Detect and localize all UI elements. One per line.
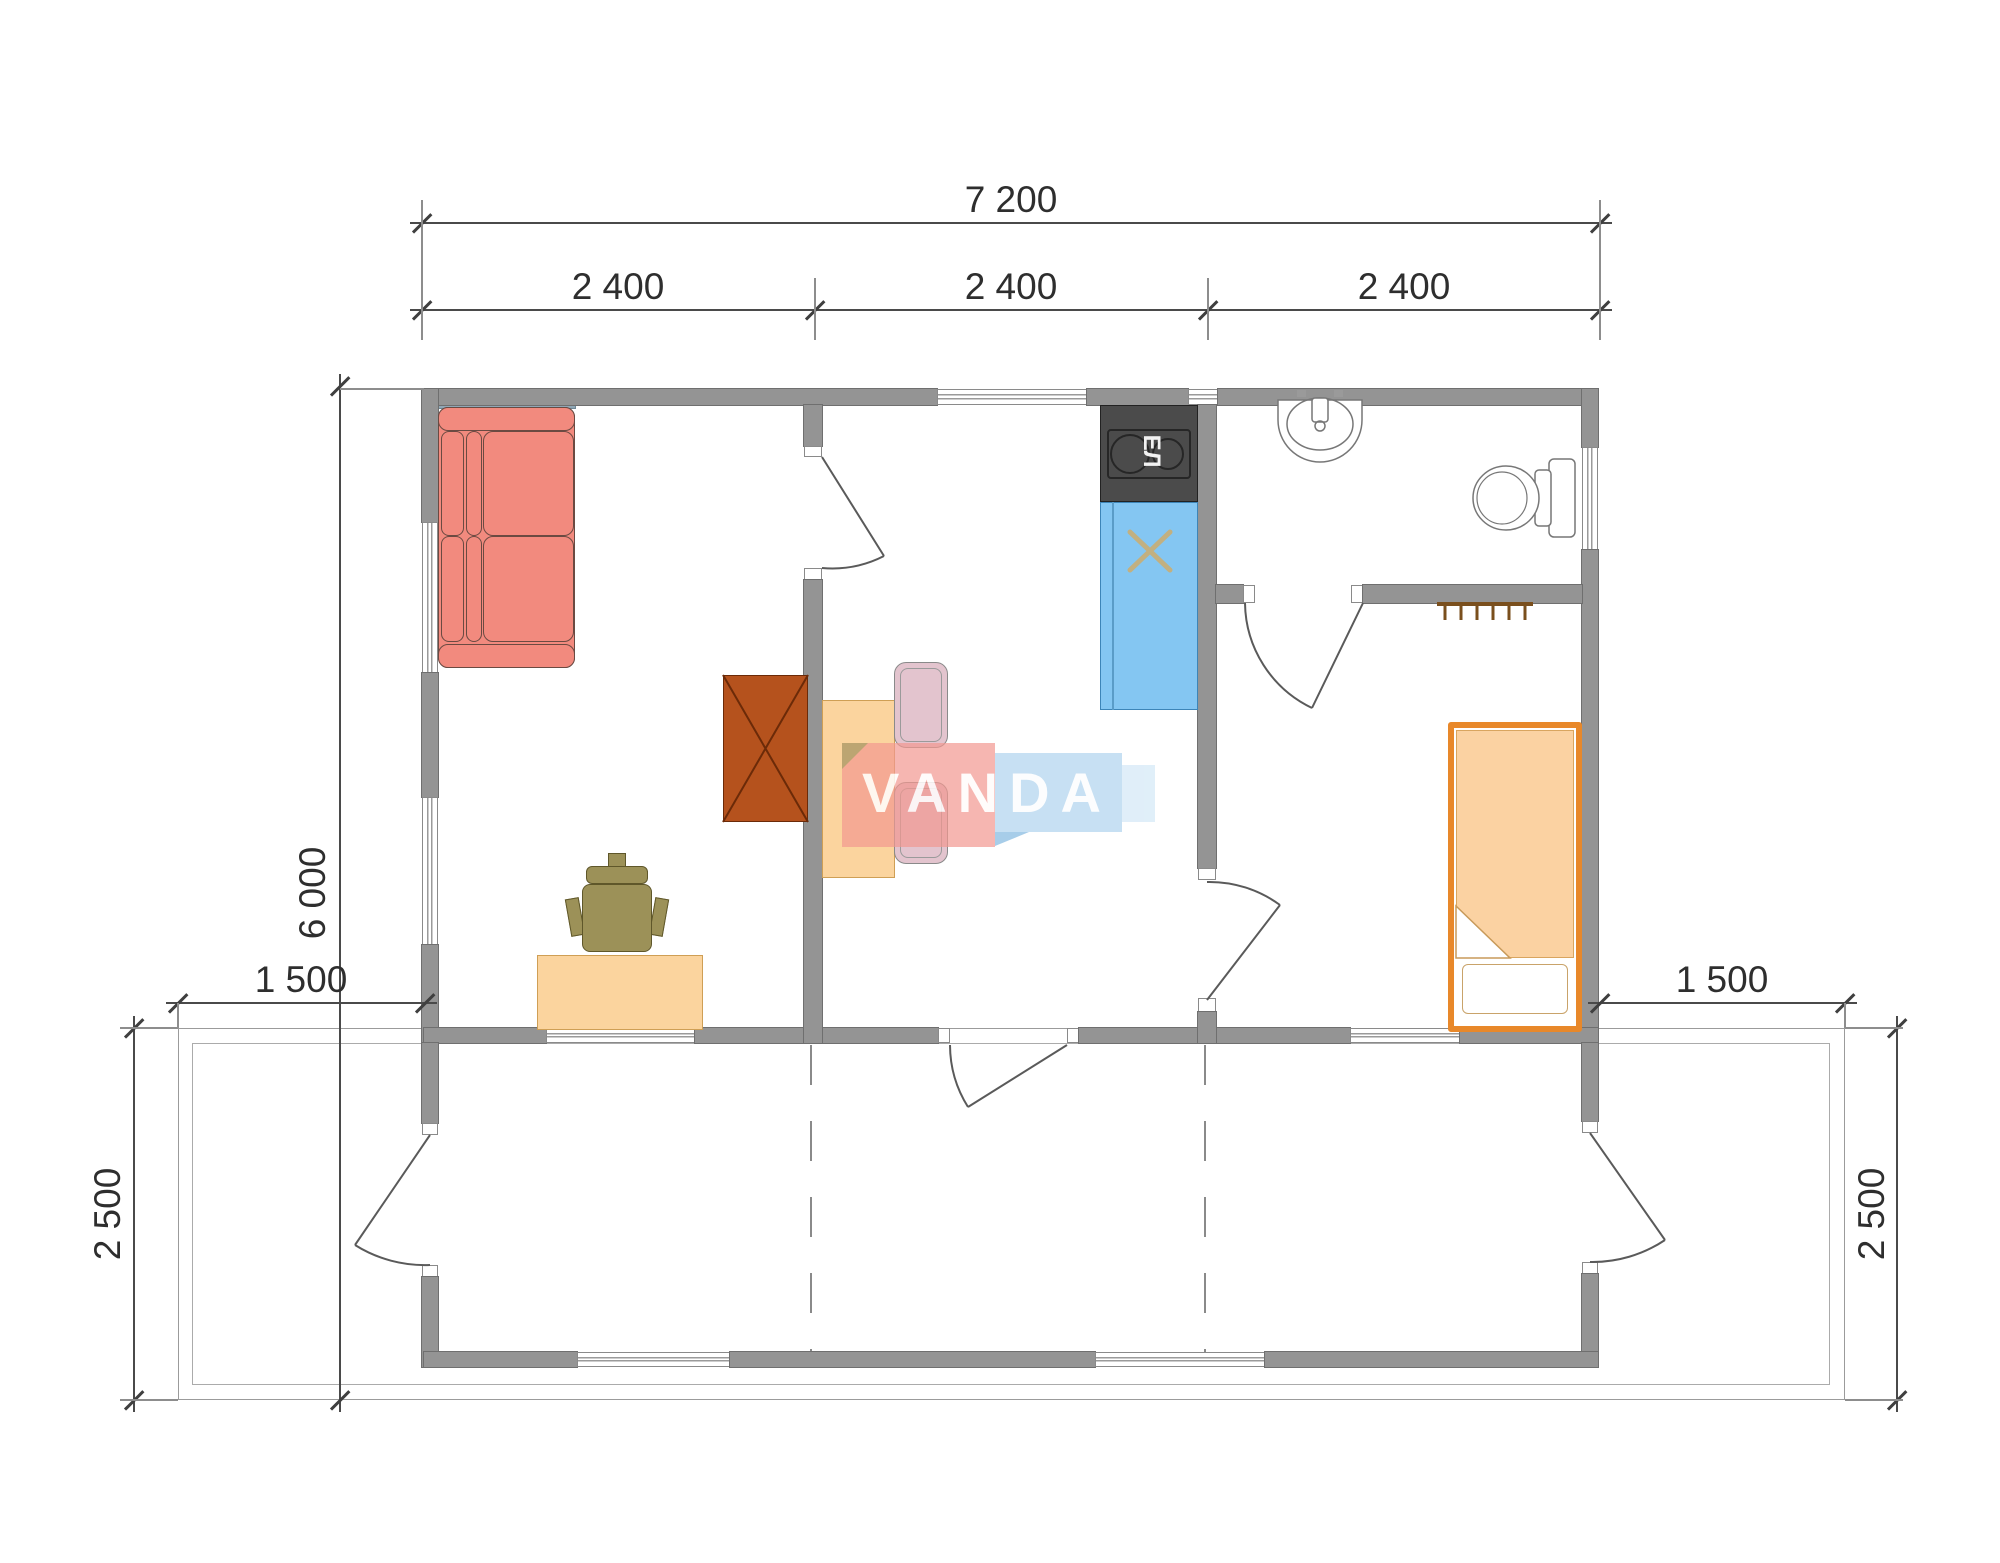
dimension-terrace-left-depth: 2 500: [88, 1129, 128, 1299]
dimension-line: [133, 1016, 135, 1412]
dimension-extension: [340, 388, 424, 390]
dimension-top-segment-3: 2 400: [1304, 267, 1504, 307]
dimension-line: [1896, 1016, 1898, 1412]
blanket-fold: [1456, 906, 1510, 958]
dimension-line: [1588, 1002, 1857, 1004]
dimension-top-segment-2: 2 400: [911, 267, 1111, 307]
dimension-extension: [814, 278, 816, 340]
toilet-tank: [1549, 459, 1575, 537]
floor-plan-canvas: ЕЛ: [0, 0, 2000, 1563]
dimension-line: [166, 1002, 437, 1004]
dimension-terrace-left-width: 1 500: [201, 960, 401, 1000]
dimension-line: [410, 309, 1612, 311]
logo-tail: [995, 832, 1029, 846]
dimension-height-left: 6 000: [293, 808, 333, 978]
door-bathroom: [1245, 603, 1363, 708]
door-veranda-west: [355, 1135, 430, 1265]
wardrobe-cross: [723, 675, 808, 822]
toilet-bowl: [1473, 466, 1539, 530]
dimension-extension: [1845, 1027, 1903, 1029]
dimension-top-total: 7 200: [911, 180, 1111, 220]
dimension-line: [339, 374, 341, 1412]
dimension-terrace-right-width: 1 500: [1622, 960, 1822, 1000]
dimension-top-segment-1: 2 400: [518, 267, 718, 307]
dimension-extension: [120, 1399, 178, 1401]
washbasin-faucet: [1312, 398, 1328, 422]
vanda-logo-text: VANDA: [862, 760, 1112, 825]
logo-blue-banner-light: [1122, 765, 1155, 822]
dimension-extension: [1844, 1003, 1846, 1028]
sink-cross: [1130, 532, 1170, 570]
dimension-extension: [177, 1003, 179, 1028]
door-kitchen-bedroom: [1207, 882, 1280, 1000]
dimension-extension: [120, 1027, 178, 1029]
dimension-terrace-right-depth: 2 500: [1852, 1129, 1892, 1299]
door-living-kitchen: [822, 457, 884, 568]
radiator-teeth: [1445, 604, 1525, 620]
dimension-extension: [421, 200, 423, 340]
dimension-line: [410, 222, 1612, 224]
dimension-extension: [1207, 278, 1209, 340]
dimension-extension: [1599, 200, 1601, 340]
door-entrance: [950, 1045, 1067, 1107]
dimension-extension: [1845, 1399, 1903, 1401]
door-veranda-east: [1590, 1133, 1665, 1262]
